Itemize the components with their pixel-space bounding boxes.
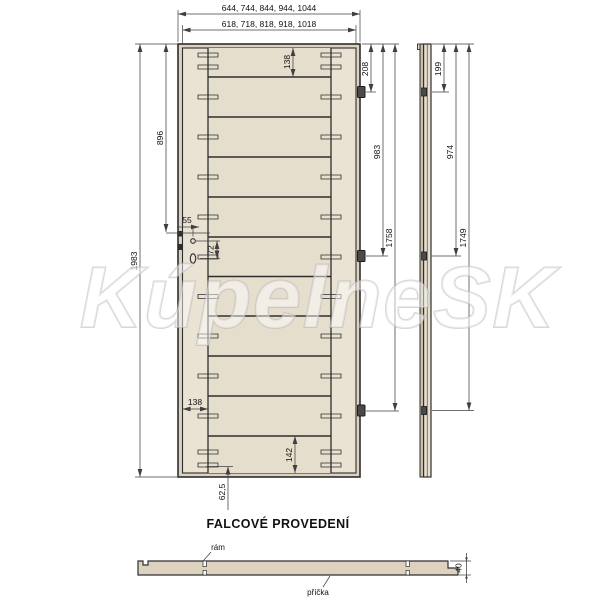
dim-inner-widths-label: 618, 718, 818, 918, 1018 [222,19,317,29]
dim-bottom-rail-label: 142 [284,448,294,462]
dim-outer-widths-label: 644, 744, 844, 944, 1044 [222,3,317,13]
dim-lock-offset-label: 55 [182,215,192,225]
left-groove-bottom [203,571,207,576]
dimension-inner-widths: 618, 718, 818, 918, 1018 [183,19,357,44]
dim-side-hinge3-label: 1749 [458,228,468,247]
watermark-text: KúpelneSK [80,250,561,346]
dim-lock-height-label: 896 [155,131,165,145]
frame-label: rám [211,543,225,552]
left-groove-top [203,561,207,567]
crossbar-label: příčka [307,588,329,597]
side-hinge-dimensions: 199 974 1749 [432,44,474,411]
side-hinge-mark-top [422,88,427,96]
side-hinge-mark-bottom [422,407,427,415]
front-hinge-dimensions: 208 983 1758 [360,44,399,411]
hinge-icon-bottom [358,405,366,416]
hinge-icon-top [358,87,366,98]
lock-faceplate-mark-top [177,231,182,237]
dim-bottom-dowel-label: 62,5 [217,483,227,500]
right-groove-top [406,561,410,567]
dim-thickness-label: 40 [454,563,464,573]
dim-side-hinge1-label: 199 [433,62,443,76]
dim-hinge3-label: 1758 [384,228,394,247]
dim-top-rail-label: 138 [282,55,292,69]
section-view: rám příčka 40 [138,543,471,597]
drawing-canvas: 644, 744, 844, 944, 1044 618, 718, 818, … [0,0,600,600]
technical-drawing-door: 644, 744, 844, 944, 1044 618, 718, 818, … [0,0,600,600]
dim-hinge2-label: 983 [372,145,382,159]
dimension-thickness-40: 40 [450,553,471,583]
section-title: FALCOVÉ PROVEDENÍ [207,516,350,531]
frame-leader-line [204,552,212,561]
right-groove-bottom [406,571,410,576]
dim-side-hinge2-label: 974 [445,145,455,159]
section-plank [138,561,458,575]
dim-hinge1-label: 208 [360,62,370,76]
crossbar-leader-line [323,576,330,587]
dim-stile-width-label: 138 [188,397,202,407]
